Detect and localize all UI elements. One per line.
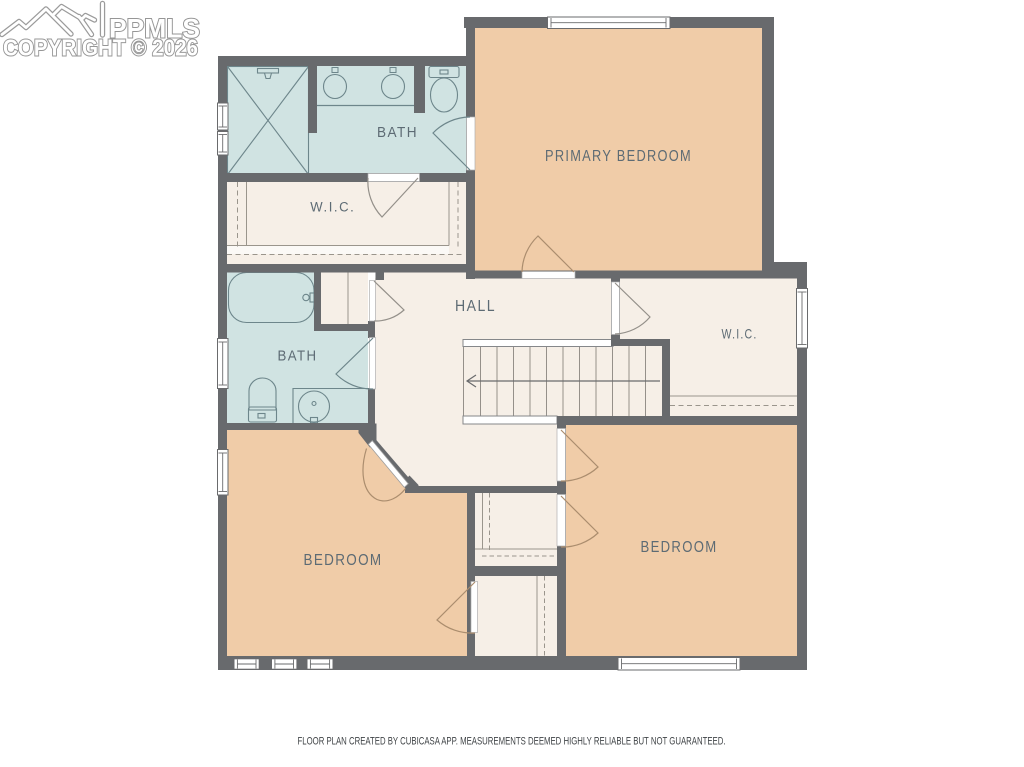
svg-text:FLOOR PLAN CREATED BY CUBICASA: FLOOR PLAN CREATED BY CUBICASA APP. MEAS… — [298, 736, 726, 748]
svg-text:PRIMARY BEDROOM: PRIMARY BEDROOM — [545, 148, 692, 165]
svg-text:BATH: BATH — [377, 124, 418, 141]
svg-text:W.I.C.: W.I.C. — [722, 326, 758, 342]
svg-text:BEDROOM: BEDROOM — [641, 539, 718, 556]
svg-text:COPYRIGHT © 2026: COPYRIGHT © 2026 — [3, 35, 198, 61]
svg-text:HALL: HALL — [455, 298, 496, 315]
svg-text:W.I.C.: W.I.C. — [310, 200, 355, 215]
svg-text:BATH: BATH — [278, 348, 318, 365]
svg-text:BEDROOM: BEDROOM — [304, 552, 383, 569]
